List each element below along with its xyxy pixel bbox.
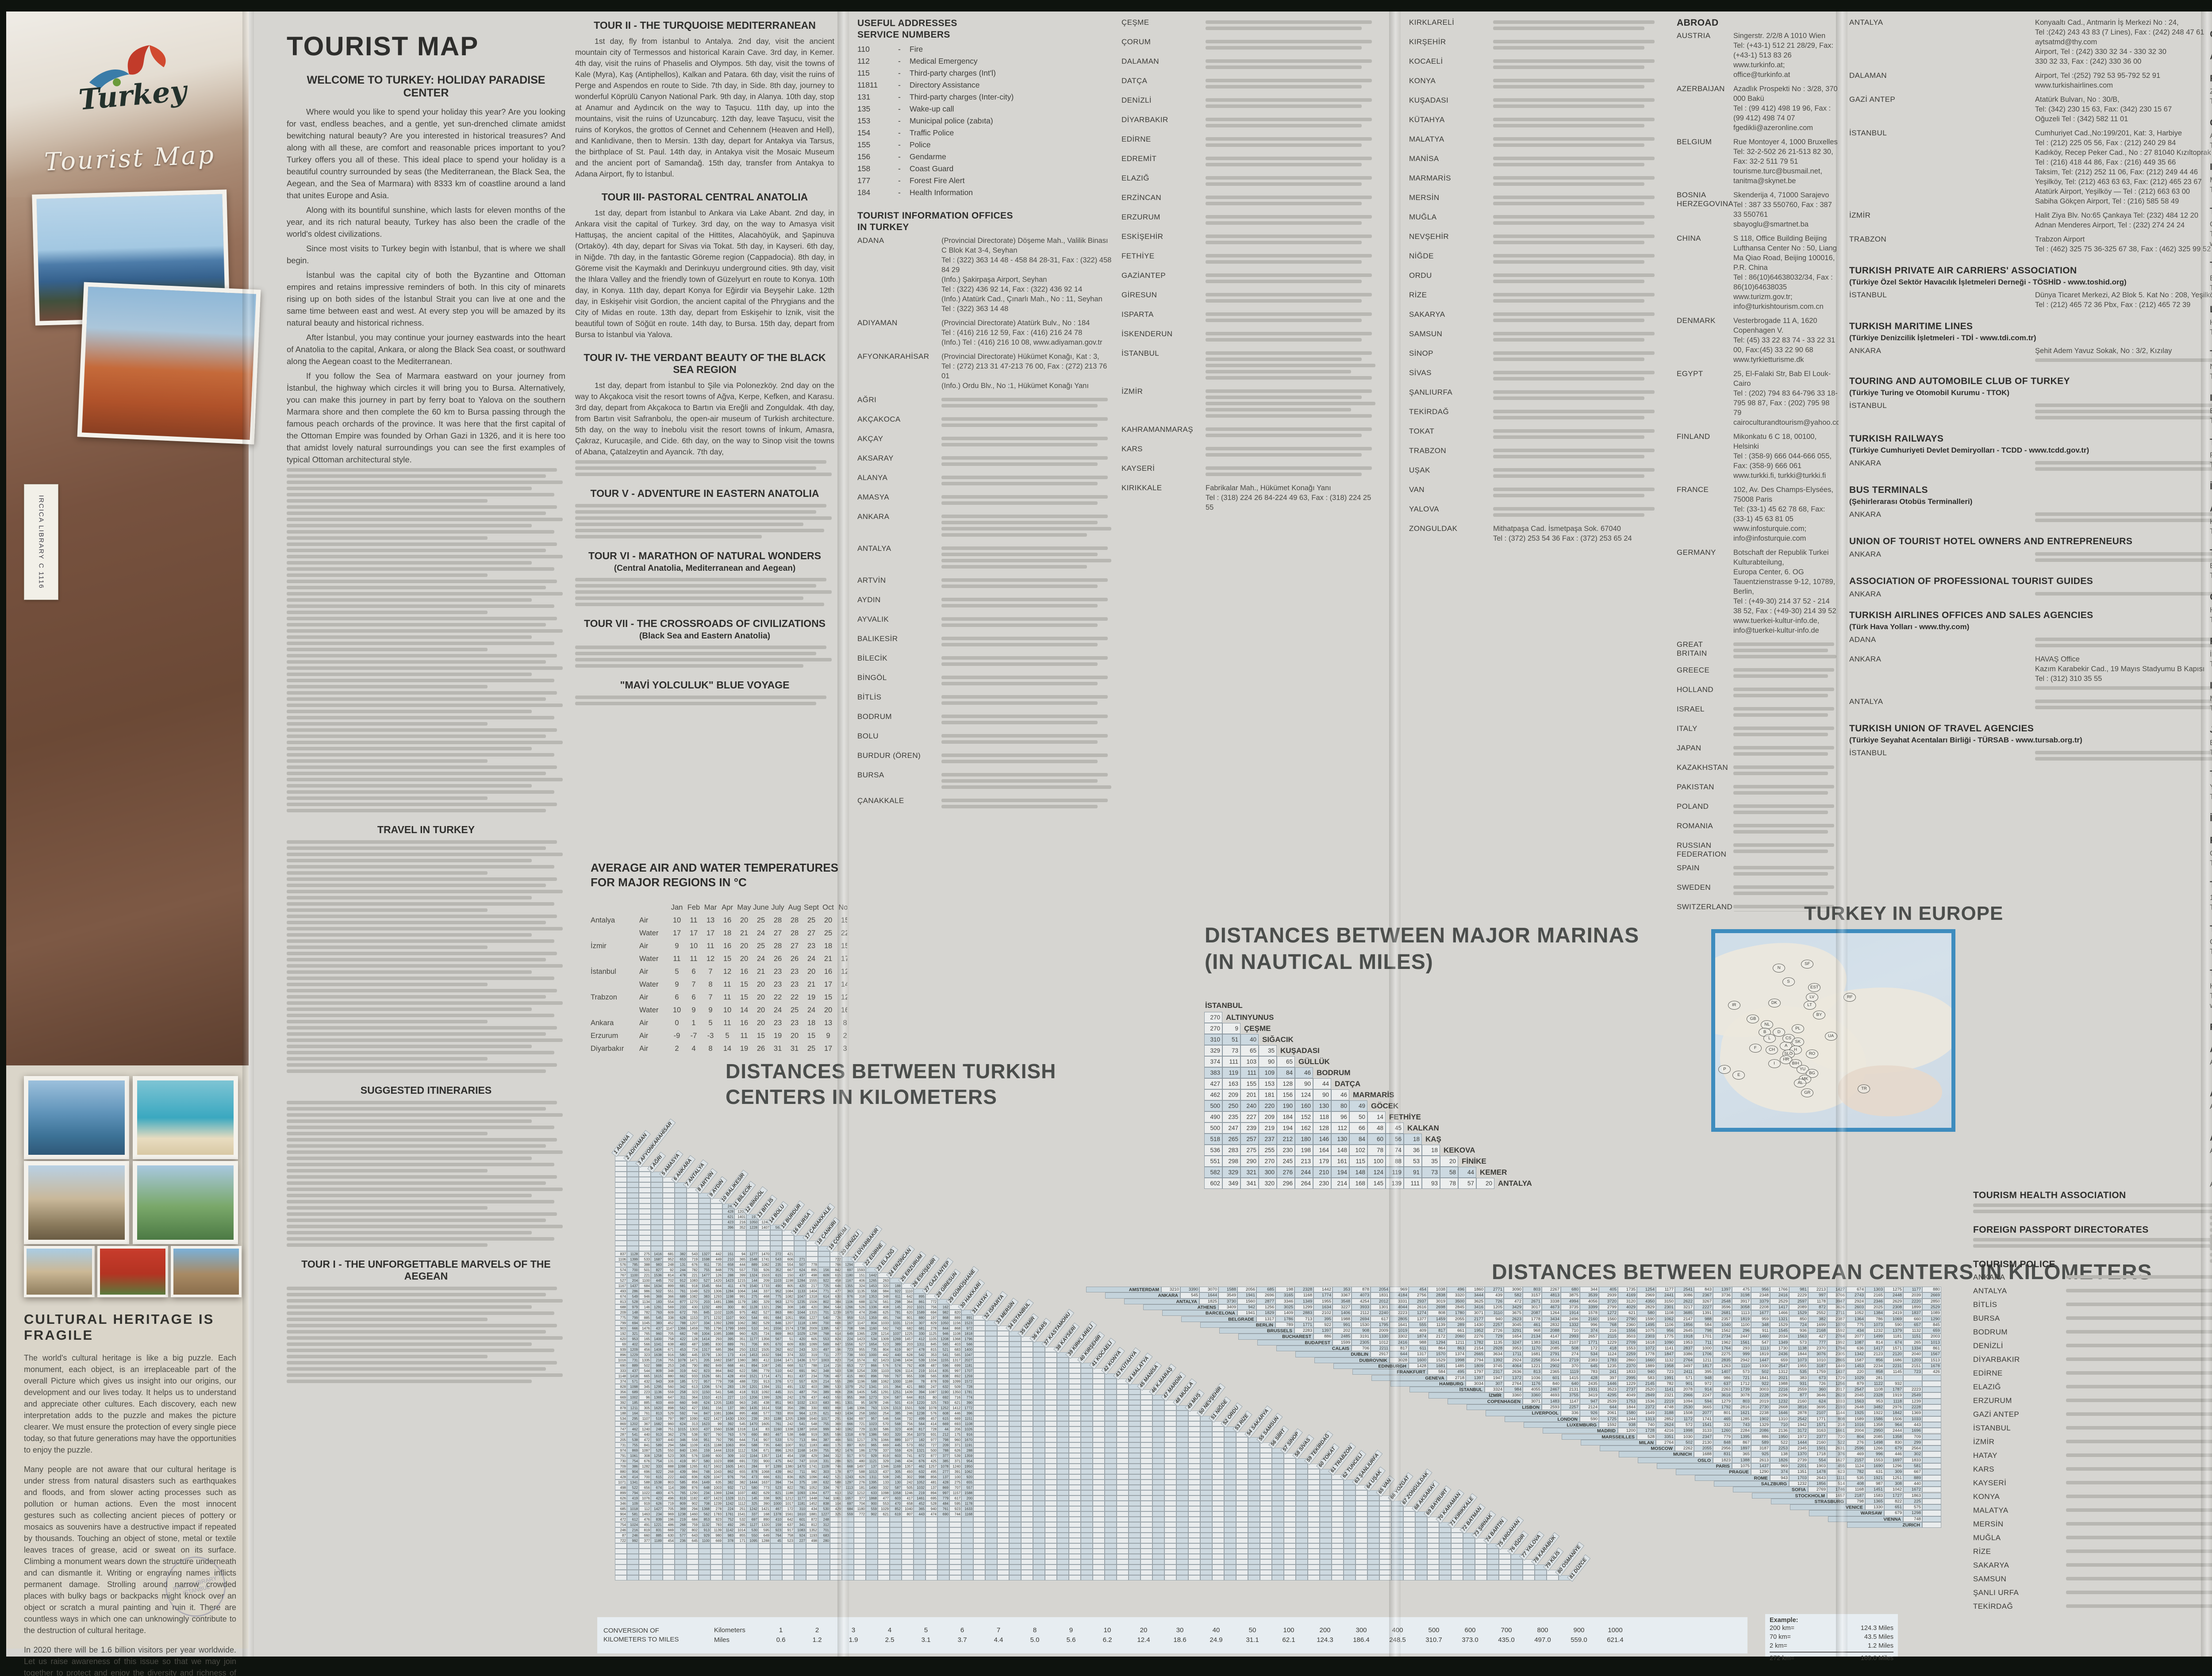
- xc: [1093, 1559, 1105, 1565]
- xc: [1200, 1554, 1212, 1559]
- ec: 660: [1903, 1316, 1922, 1322]
- xc: 1579: [699, 1352, 710, 1357]
- ec: 3338: [1542, 1299, 1561, 1304]
- xc: 711: [794, 1469, 806, 1474]
- xc: [1069, 1533, 1081, 1538]
- ec: 2283: [1294, 1328, 1313, 1334]
- xc: [973, 1549, 985, 1554]
- tc: 7: [702, 991, 719, 1004]
- xc: 1083: [687, 1278, 699, 1283]
- xc: [973, 1495, 985, 1501]
- xc: [1367, 1570, 1379, 1575]
- dc: [1493, 388, 1661, 403]
- xc: 440: [890, 1352, 902, 1357]
- ec: 2756: [1409, 1292, 1428, 1298]
- ec: 3444: [1466, 1292, 1485, 1298]
- xc: [1093, 1549, 1105, 1554]
- xc: 890: [758, 1517, 770, 1522]
- bl: [287, 1063, 557, 1067]
- bl: [287, 1150, 563, 1154]
- xc: 1470: [746, 1421, 758, 1426]
- xc: [1427, 1565, 1439, 1570]
- ec: 1825: [1199, 1299, 1218, 1304]
- xc: 272: [770, 1251, 782, 1257]
- xc: 1650: [866, 1411, 878, 1416]
- dl: AZERBAIJAN: [1677, 84, 1733, 93]
- xc: 763: [651, 1310, 663, 1315]
- xc: 1505: [758, 1347, 770, 1352]
- bl: [287, 1349, 554, 1352]
- xc: 828: [615, 1384, 627, 1389]
- xc: 329: [878, 1458, 890, 1464]
- blue-voyage-heading: "MAVİ YOLCULUK" BLUE VOYAGE: [575, 679, 834, 691]
- xc: 541: [627, 1432, 639, 1437]
- tc: 15: [753, 1030, 769, 1042]
- ec: 2696: [1256, 1292, 1275, 1298]
- xc: [627, 1193, 639, 1198]
- xc: 609: [782, 1342, 794, 1347]
- xc: 83: [758, 1426, 770, 1432]
- ec: 3504: [1542, 1357, 1561, 1363]
- xc: 502: [651, 1288, 663, 1294]
- dr: ORDU: [1409, 271, 1661, 286]
- xc: [1045, 1426, 1057, 1432]
- ec: 2168: [1808, 1328, 1827, 1334]
- xc: 415: [710, 1395, 722, 1400]
- dt: Tel : (99 412) 498 19 96, Fax : (99 412)…: [1733, 104, 1839, 123]
- xc: [1009, 1480, 1021, 1485]
- xc: [639, 1230, 651, 1235]
- xc: 1052: [806, 1485, 818, 1490]
- xc: 1207: [782, 1320, 794, 1326]
- xc: [1033, 1352, 1045, 1357]
- bl: [1206, 364, 1375, 367]
- ec: 3409: [1218, 1304, 1237, 1310]
- xc: 1003: [710, 1485, 722, 1490]
- xc: 899: [663, 1283, 675, 1288]
- tc: 10: [719, 1004, 736, 1017]
- xc: [699, 1198, 710, 1203]
- xc: 696: [639, 1469, 651, 1474]
- xc: 268: [663, 1469, 675, 1474]
- xc: 383: [746, 1357, 758, 1363]
- european-distance-matrix: AMSTERDAM3210339030701588205668519823281…: [1086, 1287, 1953, 1539]
- xc: 1078: [926, 1405, 937, 1411]
- xc: [1332, 1559, 1344, 1565]
- xc: [818, 1251, 830, 1257]
- xc: 283: [722, 1384, 734, 1389]
- mlab: KALKAN: [1407, 1122, 1439, 1134]
- ec: 1317: [1256, 1316, 1275, 1322]
- xc: 320: [890, 1432, 902, 1437]
- xc: [1176, 1543, 1188, 1549]
- tc: 20: [736, 940, 753, 953]
- xc: [1069, 1373, 1081, 1379]
- xc: [663, 1549, 675, 1554]
- xc: 779: [758, 1368, 770, 1373]
- xc: 476: [639, 1517, 651, 1522]
- mlab: İSTANBUL: [1205, 1000, 1243, 1011]
- tc: Air: [639, 940, 668, 953]
- xc: 790: [687, 1363, 699, 1368]
- el: DUBROVNIK: [1314, 1357, 1390, 1363]
- xc: 168: [758, 1511, 770, 1517]
- ec: 2937: [1409, 1299, 1428, 1304]
- xc: [1045, 1527, 1057, 1533]
- ec: 1856: [1675, 1322, 1694, 1328]
- xc: 694: [627, 1320, 639, 1326]
- dc: [1493, 465, 1661, 481]
- xc: [1033, 1474, 1045, 1480]
- xc: [997, 1405, 1009, 1411]
- xc: [1021, 1527, 1033, 1533]
- dr: SİNOP: [1409, 349, 1661, 364]
- xc: 1063: [722, 1442, 734, 1448]
- xc: [1129, 1559, 1141, 1565]
- xc: [997, 1559, 1009, 1565]
- xc: 382: [734, 1480, 746, 1485]
- mc: 73: [1222, 1045, 1240, 1056]
- xc: [1367, 1549, 1379, 1554]
- xc: 725: [818, 1283, 830, 1288]
- xc: 474: [926, 1511, 937, 1517]
- xc: [1415, 1570, 1427, 1575]
- xc: 747: [615, 1426, 627, 1432]
- ec: 2832: [1542, 1322, 1561, 1328]
- intro-paragraph: Where would you like to spend your holid…: [287, 106, 565, 201]
- ec: 2308: [1884, 1304, 1903, 1310]
- ec: 3503: [1618, 1334, 1637, 1339]
- xc: 615: [651, 1474, 663, 1480]
- xc: [1057, 1373, 1069, 1379]
- xc: [985, 1400, 997, 1405]
- xc: [1320, 1559, 1332, 1565]
- ec: 3165: [1275, 1292, 1294, 1298]
- xc: [1176, 1565, 1188, 1570]
- xc: [1129, 1575, 1141, 1580]
- xc: [770, 1235, 782, 1241]
- xc: 587: [890, 1485, 902, 1490]
- tc: 28: [769, 914, 786, 927]
- xc: 1407: [758, 1225, 770, 1230]
- ec: 710: [1561, 1328, 1580, 1334]
- xc: [937, 1522, 949, 1527]
- xc: [973, 1389, 985, 1395]
- xc: 861: [914, 1299, 926, 1304]
- xc: [890, 1565, 902, 1570]
- ec: 1397: [1313, 1328, 1333, 1334]
- bl: [287, 1181, 546, 1185]
- xc: [818, 1549, 830, 1554]
- xc: [1308, 1575, 1320, 1580]
- xc: 821: [770, 1490, 782, 1495]
- tour2-heading: TOUR II - THE TURQUOISE MEDITERRANEAN: [575, 19, 834, 31]
- xc: [1164, 1565, 1176, 1570]
- xc: [1117, 1554, 1129, 1559]
- xc: 878: [926, 1379, 937, 1384]
- xc: 1346: [878, 1464, 890, 1469]
- xc: [985, 1357, 997, 1363]
- xc: 1738: [794, 1326, 806, 1331]
- dr: ERZURUM: [1121, 212, 1379, 227]
- xc: 1638: [651, 1352, 663, 1357]
- dc: [1206, 387, 1379, 420]
- xc: [985, 1474, 997, 1480]
- xc: 444: [734, 1262, 746, 1267]
- xc: 1359: [961, 1453, 973, 1458]
- dl: İSTANBUL: [1121, 349, 1206, 358]
- xc: 842: [722, 1368, 734, 1373]
- xc: [639, 1219, 651, 1225]
- unread-body-text: [287, 468, 565, 812]
- xc: 411: [722, 1283, 734, 1288]
- ec: 713: [1294, 1316, 1313, 1322]
- xc: [1033, 1421, 1045, 1426]
- xc: 437: [627, 1368, 639, 1373]
- xc: 389: [818, 1389, 830, 1395]
- svcrow: 112-Medical Emergency: [857, 55, 1115, 67]
- xc: 1114: [902, 1368, 914, 1373]
- tc: 25: [820, 927, 837, 940]
- ec: 1135: [1485, 1340, 1504, 1345]
- xc: [985, 1395, 997, 1400]
- xc: 775: [615, 1315, 627, 1320]
- xc: 1183: [806, 1442, 818, 1448]
- bl: [287, 654, 557, 657]
- xc: [651, 1209, 663, 1214]
- bl: [941, 404, 1098, 407]
- bl: [287, 734, 546, 738]
- bl: [575, 646, 826, 649]
- xc: 320: [878, 1283, 890, 1288]
- xc: 729: [854, 1426, 866, 1432]
- xc: 769: [878, 1373, 890, 1379]
- xc: [1009, 1405, 1021, 1411]
- xc: [1021, 1485, 1033, 1490]
- xc: 559: [663, 1389, 675, 1395]
- xc: [1045, 1511, 1057, 1517]
- dr: ÇORUM: [1121, 37, 1379, 52]
- xc: [687, 1193, 699, 1198]
- dt: Vesterbrogade 11 A, 1620 Copenhagen V.: [1733, 316, 1839, 335]
- xc: [914, 1527, 926, 1533]
- country-code-DK: DK: [1768, 999, 1781, 1007]
- xc: 929: [699, 1533, 710, 1538]
- xc: 1085: [710, 1331, 722, 1336]
- ec: 1831: [1371, 1292, 1390, 1298]
- xc: [985, 1432, 997, 1437]
- xc: [1057, 1533, 1069, 1538]
- xc: [651, 1225, 663, 1230]
- bl: [1493, 357, 1644, 361]
- xc: 1000: [770, 1501, 782, 1506]
- dr: ŞANLIURFA: [1409, 388, 1661, 403]
- tc: [591, 978, 639, 991]
- xc: 442: [878, 1352, 890, 1357]
- xc: 219: [914, 1368, 926, 1373]
- bl: [287, 549, 546, 552]
- xc: 814: [663, 1272, 675, 1278]
- xc: 228: [866, 1331, 878, 1336]
- xc: 1112: [734, 1448, 746, 1453]
- xc: 1365: [854, 1331, 866, 1336]
- xc: 1561: [782, 1511, 794, 1517]
- dc: [941, 434, 1115, 449]
- xc: 523: [663, 1453, 675, 1458]
- xc: [1451, 1549, 1463, 1554]
- xc: 601: [794, 1517, 806, 1522]
- dt: Botschaft der Republik Turkei Kulturabte…: [1733, 548, 1839, 567]
- xc: 1615: [651, 1373, 663, 1379]
- xc: [937, 1559, 949, 1565]
- xc: 602: [782, 1347, 794, 1352]
- xc: 209: [937, 1442, 949, 1448]
- xc: [1021, 1426, 1033, 1432]
- ec: 348: [1751, 1322, 1770, 1328]
- xc: [973, 1554, 985, 1559]
- bl: [287, 1175, 557, 1179]
- xc: 576: [615, 1262, 627, 1267]
- xc: 338: [758, 1495, 770, 1501]
- dt: (Info.) Şakirpaşa Airport, Seyhan: [941, 275, 1115, 284]
- dl: POLAND: [1677, 802, 1733, 811]
- xc: [1129, 1554, 1141, 1559]
- ec: 1332: [1561, 1322, 1580, 1328]
- xc: [961, 1565, 973, 1570]
- xc: [615, 1203, 627, 1209]
- xc: 788: [675, 1320, 687, 1326]
- xc: [615, 1246, 627, 1251]
- xc: [914, 1575, 926, 1580]
- xc: 1135: [854, 1288, 866, 1294]
- xc: 417: [902, 1495, 914, 1501]
- dr: KAYSERİ: [1121, 464, 1379, 479]
- xc: [973, 1379, 985, 1384]
- xc: 298: [890, 1299, 902, 1304]
- xc: [902, 1543, 914, 1549]
- xc: [997, 1389, 1009, 1395]
- xc: [997, 1421, 1009, 1426]
- xc: [1069, 1426, 1081, 1432]
- country-code-UA: UA: [1825, 1032, 1837, 1041]
- xc: [615, 1235, 627, 1241]
- xc: [1057, 1363, 1069, 1368]
- xc: 922: [890, 1288, 902, 1294]
- dl: ROMANIA: [1677, 821, 1733, 830]
- ec: 674: [1884, 1340, 1903, 1345]
- dc: [1493, 349, 1661, 364]
- bl: [1493, 410, 1655, 413]
- tc: 24: [753, 953, 769, 965]
- xc: [699, 1554, 710, 1559]
- dr: KONYA: [1409, 76, 1661, 91]
- bl: [1206, 376, 1372, 380]
- xc: [1069, 1485, 1081, 1490]
- xc: 1246: [890, 1357, 902, 1363]
- tc: 9: [702, 1004, 719, 1017]
- trow: TrabzonAir66711152022221915129: [591, 991, 847, 1004]
- xc: 1741: [806, 1464, 818, 1469]
- xc: 880: [663, 1373, 675, 1379]
- mc: 145: [1367, 1178, 1386, 1189]
- xc: [985, 1501, 997, 1506]
- xc: 1439: [806, 1448, 818, 1453]
- xc: 236: [675, 1538, 687, 1543]
- xc: 538: [687, 1432, 699, 1437]
- xc: 903: [615, 1326, 627, 1331]
- xc: [1296, 1554, 1308, 1559]
- xc: 1026: [961, 1426, 973, 1432]
- xc: [1069, 1442, 1081, 1448]
- ec: 2548: [1713, 1299, 1732, 1304]
- dt: 102, Av. Des Champs-Elysées, 75008 Paris: [1733, 485, 1839, 504]
- bl: [1733, 642, 1834, 646]
- xc: 896: [866, 1373, 878, 1379]
- xc: 561: [878, 1299, 890, 1304]
- xc: 946: [639, 1294, 651, 1299]
- ec: 427: [1808, 1334, 1827, 1339]
- xc: [1344, 1565, 1356, 1570]
- xc: [675, 1575, 687, 1580]
- xc: 988: [651, 1363, 663, 1368]
- xc: [818, 1565, 830, 1570]
- bl: [287, 1163, 554, 1166]
- xc: 754: [627, 1458, 639, 1464]
- xc: [615, 1166, 627, 1172]
- xc: 889: [890, 1437, 902, 1442]
- xc: 685: [710, 1347, 722, 1352]
- xc: 655: [734, 1469, 746, 1474]
- xc: [1224, 1565, 1236, 1570]
- xc: [746, 1565, 758, 1570]
- xc: 1228: [746, 1225, 758, 1230]
- mc: 500: [1204, 1122, 1222, 1134]
- ec: 1205: [1485, 1304, 1504, 1310]
- xc: 440: [639, 1432, 651, 1437]
- xc: [1272, 1575, 1284, 1580]
- tc: 23: [786, 1017, 803, 1030]
- svcdash: -: [898, 187, 910, 199]
- ec: 2367: [1694, 1292, 1713, 1298]
- xc: [1439, 1559, 1451, 1565]
- xc: 1277: [746, 1251, 758, 1257]
- xc: [1009, 1347, 1021, 1352]
- ec: 2799: [1599, 1304, 1618, 1310]
- ec: 2771: [1485, 1287, 1504, 1292]
- ec: 3210: [1161, 1287, 1180, 1292]
- xc: [1344, 1549, 1356, 1554]
- bl: [1206, 196, 1372, 199]
- xc: [1403, 1575, 1415, 1580]
- xc: 911: [699, 1262, 710, 1267]
- xc: 1037: [734, 1490, 746, 1495]
- xc: [663, 1209, 675, 1214]
- ec: 1100: [1732, 1322, 1751, 1328]
- dt: Tel : (358-9) 666 044-666 055, Fax: (358…: [1733, 451, 1839, 471]
- xc: [782, 1559, 794, 1565]
- offices-heading-1: TOURIST INFORMATION OFFICES: [857, 211, 1013, 221]
- country-code-AL: AL: [1794, 1079, 1806, 1088]
- xc: 943: [651, 1379, 663, 1384]
- xc: 765: [699, 1326, 710, 1331]
- xc: [997, 1501, 1009, 1506]
- marina-title-line1: DISTANCES BETWEEN MAJOR MARINAS: [1205, 924, 1639, 947]
- ec: 2917: [1371, 1351, 1390, 1357]
- ec: 2085: [1542, 1345, 1561, 1351]
- tc: 12: [719, 965, 736, 978]
- xc: 678: [854, 1432, 866, 1437]
- xc: [1356, 1565, 1367, 1570]
